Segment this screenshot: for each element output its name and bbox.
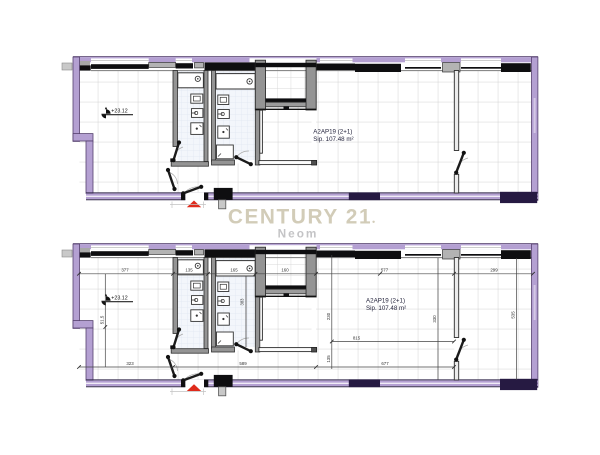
svg-text:160: 160 <box>281 268 289 273</box>
svg-text:CENTURY 21: CENTURY 21 <box>228 205 372 228</box>
svg-text:577: 577 <box>381 268 389 273</box>
svg-text:+23.12: +23.12 <box>111 109 127 115</box>
svg-text:135: 135 <box>326 355 331 363</box>
svg-text:330: 330 <box>432 315 437 323</box>
svg-text:A2AP19 (2+1): A2AP19 (2+1) <box>366 298 405 305</box>
svg-text:299: 299 <box>490 268 498 273</box>
svg-text:377: 377 <box>121 268 129 273</box>
svg-text:51.5: 51.5 <box>100 315 105 324</box>
svg-text:323: 323 <box>126 361 134 366</box>
svg-text:165: 165 <box>230 268 238 273</box>
svg-text:383: 383 <box>239 298 244 306</box>
svg-text:589: 589 <box>239 361 247 366</box>
svg-text:535: 535 <box>511 311 516 319</box>
svg-text:+23.12: +23.12 <box>111 296 127 302</box>
svg-text:135: 135 <box>185 268 193 273</box>
svg-text:815: 815 <box>353 335 361 340</box>
svg-text:Sip. 107.48 m²: Sip. 107.48 m² <box>366 305 406 312</box>
svg-text:Sip. 107.48 m²: Sip. 107.48 m² <box>313 136 353 143</box>
svg-text:A2AP19 (2+1): A2AP19 (2+1) <box>313 129 352 136</box>
svg-text:230: 230 <box>326 312 331 320</box>
svg-text:677: 677 <box>381 361 389 366</box>
svg-text:Neom: Neom <box>278 227 319 241</box>
